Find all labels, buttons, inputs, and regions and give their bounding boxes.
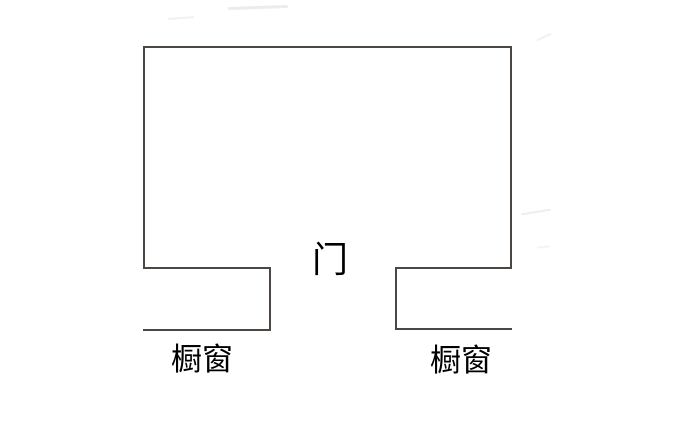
left-showcase-front-wall [143,329,271,331]
scan-smudge [521,209,551,216]
right-showcase-label: 橱窗 [426,346,496,377]
left-showcase-inner-wall [269,267,271,331]
scan-smudge [537,245,550,248]
scan-smudge [168,16,194,20]
floor-plan-diagram: 门 橱窗 橱窗 [0,0,674,440]
left-showcase-label: 橱窗 [167,345,237,376]
shop-wall-bottom-left [143,267,271,269]
right-showcase-inner-wall [395,267,397,330]
shop-wall-left [143,46,145,269]
door-label: 门 [300,243,360,279]
scan-smudge [228,5,288,10]
right-showcase-front-wall [395,328,512,330]
scan-smudge [536,33,551,42]
shop-wall-right [510,46,512,269]
shop-wall-top [143,46,512,48]
shop-wall-bottom-right [395,267,512,269]
